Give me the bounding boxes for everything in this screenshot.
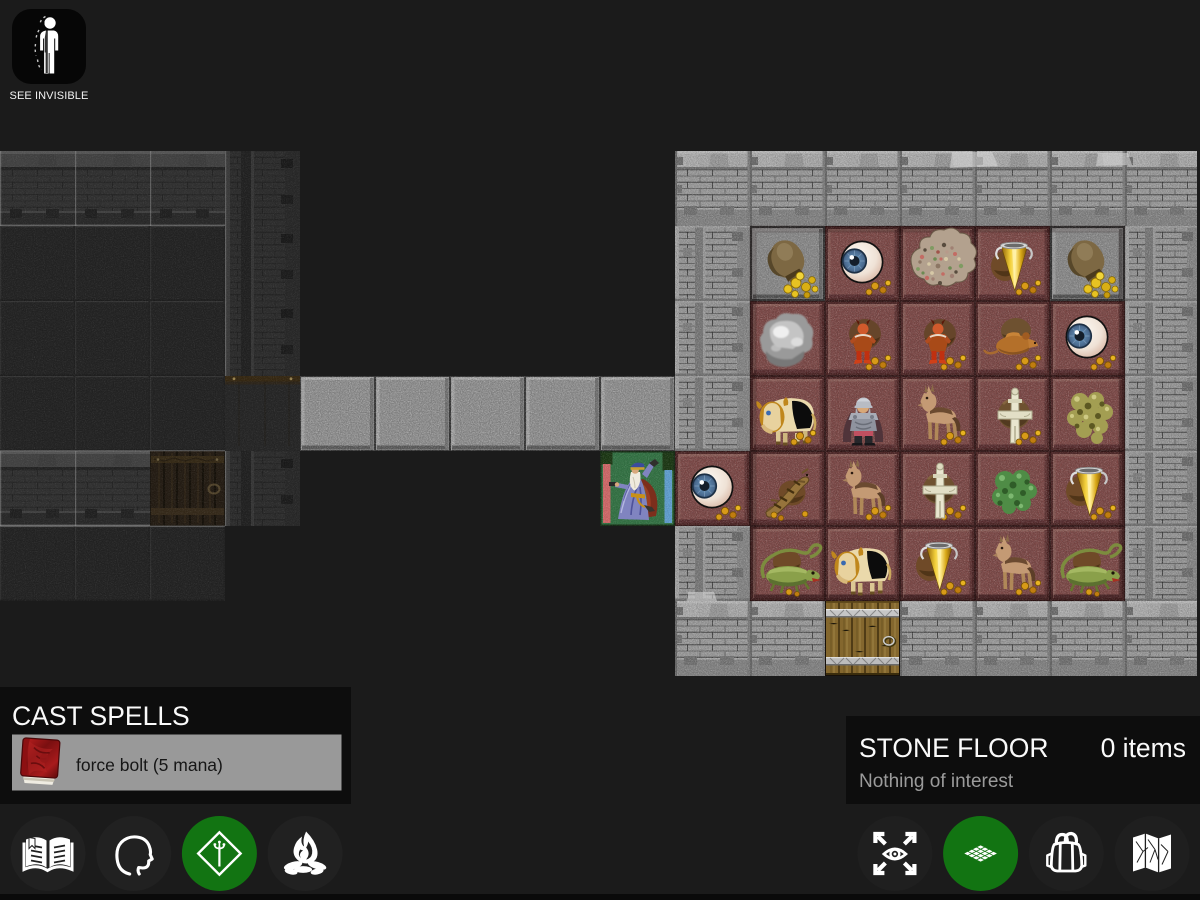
svg-text:Nothing of interest: Nothing of interest [859, 771, 1014, 792]
svg-text:CAST SPELLS: CAST SPELLS [12, 701, 190, 731]
svg-text:STONE FLOOR: STONE FLOOR [859, 733, 1048, 763]
svg-text:0 items: 0 items [1101, 733, 1186, 763]
svg-text:force bolt (5 mana): force bolt (5 mana) [76, 755, 223, 775]
svg-text:SEE INVISIBLE: SEE INVISIBLE [10, 90, 89, 102]
